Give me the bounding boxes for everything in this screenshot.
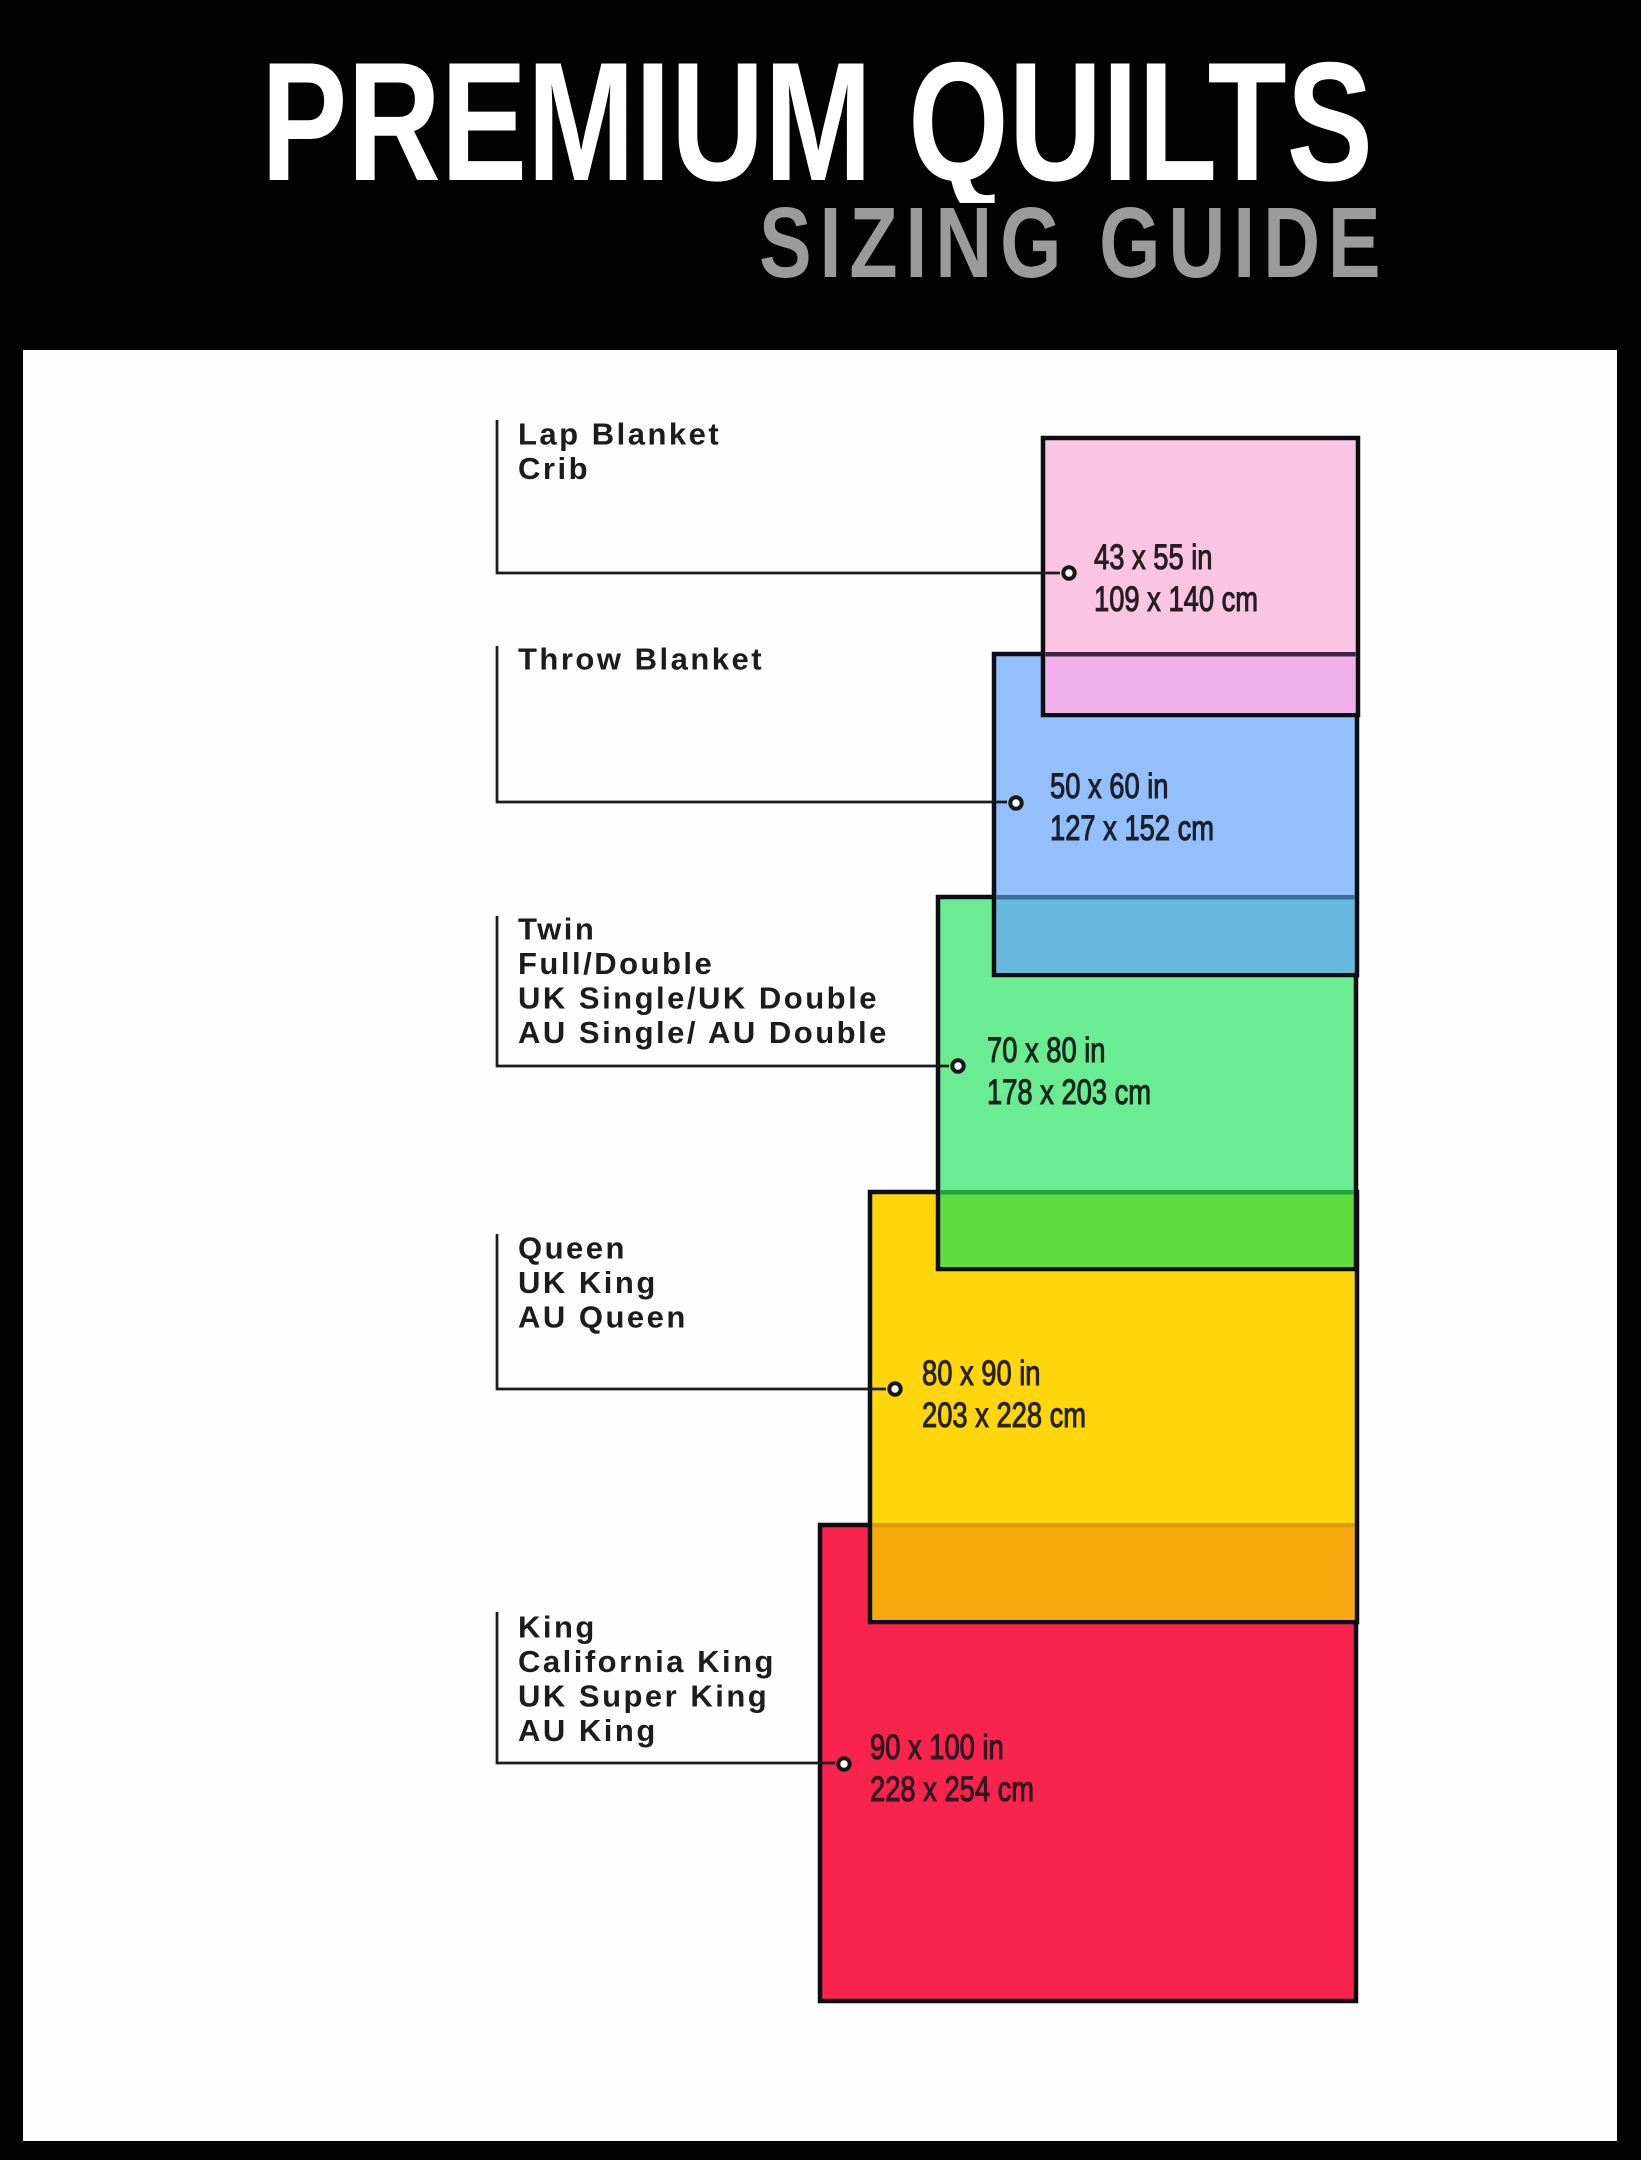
- svg-text:UK Single/UK Double: UK Single/UK Double: [518, 981, 879, 1016]
- svg-text:Throw Blanket: Throw Blanket: [518, 642, 764, 677]
- svg-text:127 x 152 cm: 127 x 152 cm: [1050, 808, 1214, 848]
- svg-text:King: King: [518, 1610, 597, 1645]
- svg-text:AU Queen: AU Queen: [518, 1300, 688, 1335]
- svg-text:43 x 55 in: 43 x 55 in: [1094, 537, 1213, 577]
- svg-text:SIZING GUIDE: SIZING GUIDE: [759, 187, 1388, 299]
- svg-text:90 x 100 in: 90 x 100 in: [870, 1727, 1004, 1767]
- svg-text:80 x 90 in: 80 x 90 in: [922, 1353, 1041, 1393]
- svg-text:Full/Double: Full/Double: [518, 946, 714, 981]
- svg-text:178 x 203 cm: 178 x 203 cm: [987, 1072, 1151, 1112]
- svg-text:70 x 80 in: 70 x 80 in: [987, 1030, 1106, 1070]
- svg-text:203 x 228 cm: 203 x 228 cm: [922, 1395, 1086, 1435]
- svg-text:AU Single/ AU Double: AU Single/ AU Double: [518, 1015, 889, 1050]
- svg-text:Twin: Twin: [518, 912, 596, 947]
- svg-text:AU King: AU King: [518, 1713, 658, 1748]
- svg-text:50 x 60 in: 50 x 60 in: [1050, 766, 1169, 806]
- svg-text:Lap Blanket: Lap Blanket: [518, 417, 721, 452]
- svg-text:109 x 140 cm: 109 x 140 cm: [1094, 579, 1258, 619]
- svg-text:California King: California King: [518, 1644, 776, 1679]
- svg-text:Crib: Crib: [518, 451, 590, 486]
- svg-text:Queen: Queen: [518, 1231, 627, 1266]
- svg-text:UK King: UK King: [518, 1265, 658, 1300]
- svg-text:228 x 254 cm: 228 x 254 cm: [870, 1769, 1034, 1809]
- svg-text:UK Super King: UK Super King: [518, 1679, 769, 1714]
